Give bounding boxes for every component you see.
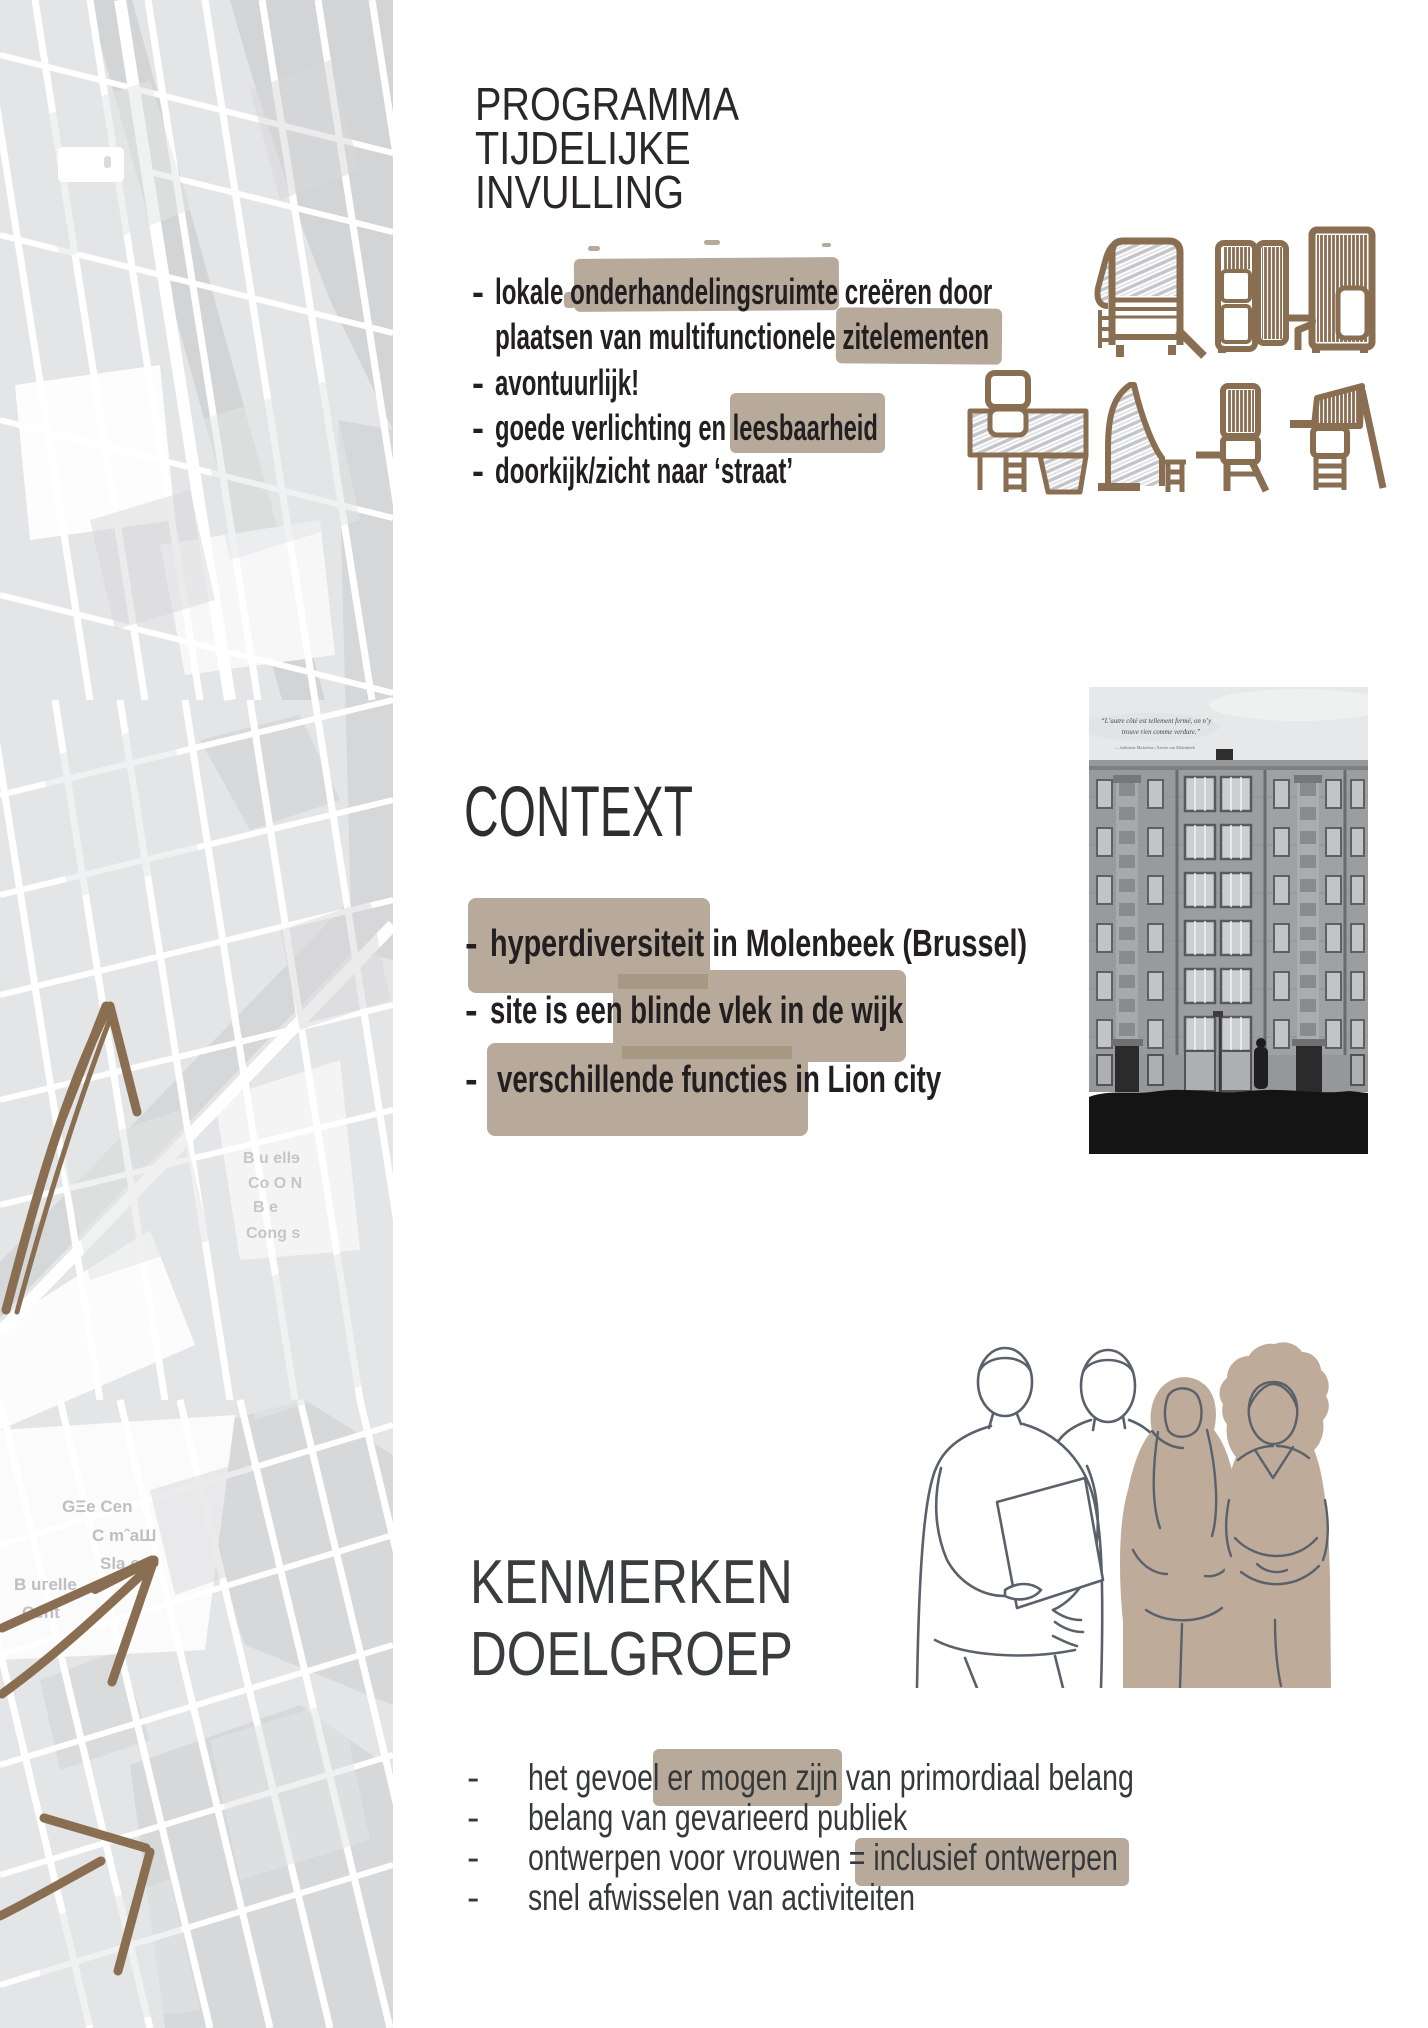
- svg-text:C mˆaШ: C mˆaШ: [92, 1526, 156, 1545]
- svg-text:GΞe Cen: GΞe Cen: [62, 1497, 132, 1516]
- svg-text:B e: B e: [253, 1199, 278, 1216]
- svg-text:Cong s: Cong s: [246, 1225, 300, 1242]
- svg-text:B uгelle: B uгelle: [14, 1575, 77, 1594]
- svg-text:B u ellɘ: B u ellɘ: [243, 1150, 300, 1167]
- svg-text:“L’autre côté est tellement fe: “L’autre côté est tellement fermé, on n’…: [1101, 718, 1212, 725]
- svg-text:Co O N: Co O N: [248, 1175, 302, 1192]
- svg-text:trouve rien comme verdure.”: trouve rien comme verdure.”: [1122, 729, 1201, 736]
- svg-text:— habitante Micheline | Xavie: — habitante Micheline | Xavier van Molen…: [1114, 745, 1196, 750]
